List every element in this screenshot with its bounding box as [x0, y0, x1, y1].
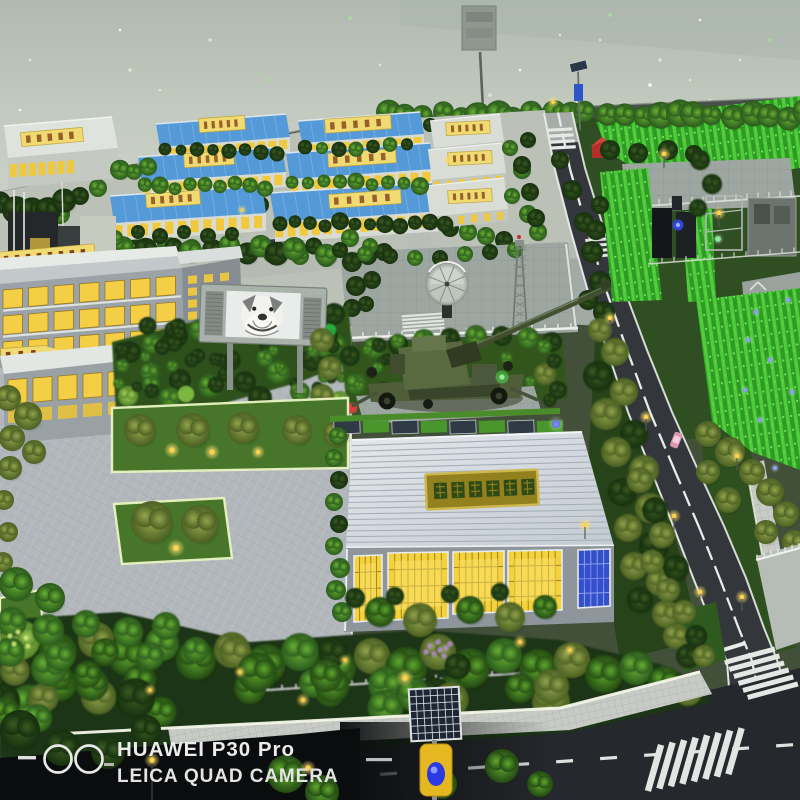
svg-text:HUAWEI P30 Pro: HUAWEI P30 Pro — [117, 738, 295, 761]
svg-text:LEICA QUAD CAMERA: LEICA QUAD CAMERA — [117, 766, 338, 787]
